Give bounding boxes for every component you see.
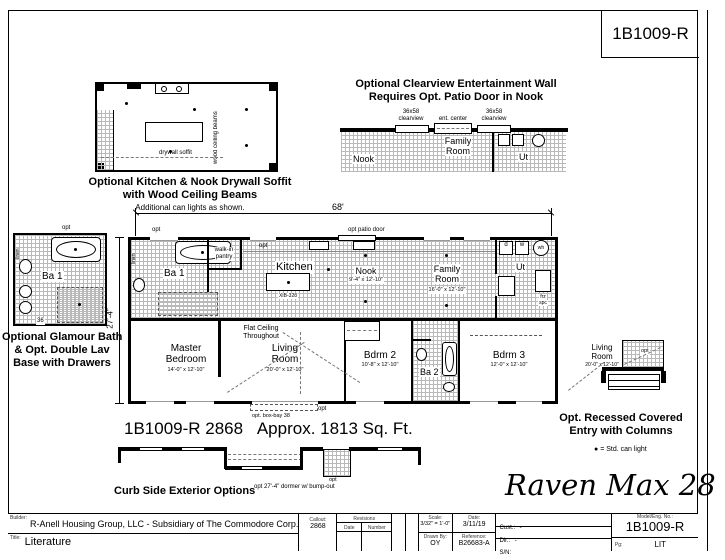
revisions-cell: Revisions Date Number (336, 514, 391, 551)
patio-door (338, 235, 376, 241)
room-label-family: Family Room (419, 264, 475, 284)
window (186, 401, 214, 405)
drywall-soffit-label: drywall soffit (159, 150, 192, 157)
window (356, 401, 384, 405)
nook-label: Nook (352, 154, 375, 164)
column (661, 371, 666, 383)
sink (443, 382, 455, 392)
soffit-dashed-line (101, 157, 223, 158)
dormer-dashed-line (228, 454, 302, 455)
room-label-ba2: Ba 2 (419, 367, 440, 377)
room-label-ba1: Ba 1 (41, 271, 64, 282)
opt-label: opt (259, 243, 267, 250)
range (353, 241, 375, 250)
window (182, 447, 204, 451)
closet (344, 321, 380, 341)
porch-deck (323, 449, 351, 477)
reference-value: B26683-A (453, 540, 496, 548)
opt-label: opt (318, 406, 326, 413)
title-line: Requires Opt. Patio Door in Nook (344, 91, 568, 104)
pg-value: LIT (622, 540, 698, 549)
dim-width-label: 68' (332, 202, 344, 212)
box-bay-outline (250, 404, 318, 411)
ceiling-ridge-line (300, 332, 301, 394)
opt-label: opt (62, 225, 70, 232)
linen-label: linen (131, 246, 137, 264)
ent-wall-title: Optional Clearview Entertainment Wall Re… (344, 78, 568, 104)
rev-date-header: Date (337, 523, 362, 531)
washer-box (512, 134, 524, 146)
caption-line: Optional Kitchen & Nook Drywall Soffit (84, 176, 296, 189)
wall-segment (492, 132, 494, 172)
window (516, 401, 542, 405)
family-room-label: Family Room (428, 136, 488, 156)
window (424, 237, 450, 241)
cust-row: Cust.: - (496, 514, 610, 527)
builder-label: Builder: (10, 515, 27, 521)
garden-tub (51, 237, 101, 262)
kitchen-soffit-detail: wood ceiling beams drywall soffit (95, 82, 278, 172)
dlr-row: Dlr.: - (496, 527, 610, 539)
revisions-subheader: Date Number (337, 523, 391, 532)
model-pg-cell: Model/Eng. No.: 1B1009-R Pg: LIT (611, 514, 698, 551)
ut-label: Ut (518, 152, 529, 162)
wall-post (269, 163, 276, 170)
dim-depth-label: 27'-4" (106, 308, 115, 328)
glamour-bath-detail: Ba 1 linen (13, 233, 107, 326)
wall-segment (495, 296, 497, 318)
room-label-nook: Nook (346, 266, 386, 276)
room-label-master: Master Bedroom 14'-0" x 12'-10" (151, 343, 221, 374)
cooktop (155, 83, 189, 94)
closet-rod (347, 330, 377, 331)
island-model-label: XIB-328 (266, 293, 310, 299)
clearview-window (395, 125, 429, 133)
can-light-dot (445, 254, 448, 257)
window (242, 466, 262, 470)
toilet (133, 278, 145, 292)
series-name-logo: Raven Max 28 (505, 468, 705, 502)
rev-number-header: Number (362, 523, 391, 531)
tub (442, 342, 457, 376)
clearview-window (477, 125, 511, 133)
can-light-dot (445, 304, 448, 307)
wall-segment (495, 240, 497, 274)
lav-cabinet (498, 276, 515, 296)
lav-sink (19, 285, 32, 298)
entry-detail-caption: Opt. Recessed Covered Entry with Columns (556, 412, 686, 438)
window (140, 447, 162, 451)
can-light-dot (74, 248, 77, 251)
wall-segment (240, 240, 242, 270)
freezer-space-label: frz spc (535, 294, 551, 306)
title-line: Optional Clearview Entertainment Wall (344, 78, 568, 91)
dormer-label: opt 27'-4" dormer w/ bump-out (254, 484, 335, 491)
linen-label: linen (15, 239, 21, 259)
wall-post (269, 84, 276, 91)
date-value: 3/11/19 (453, 521, 496, 529)
can-light-dot (364, 300, 367, 303)
wood-beams-label: wood ceiling beams (213, 90, 220, 164)
room-label-ut: Ut (515, 262, 526, 272)
nook-dims: 9'-4" x 12'-10" (336, 277, 396, 284)
model-value: 1B1009-R (612, 520, 698, 534)
plan-caption-model: 1B1009-R 2868 (124, 419, 243, 438)
opt-patio-door-label: opt patio door (348, 227, 385, 234)
builder-row: Builder: R-Anell Housing Group, LLC - Su… (8, 514, 298, 533)
drawn-by-value: OY (419, 540, 452, 548)
model-number-box: 1B1009-R (601, 11, 699, 58)
ent-wall-detail: 36x58 clearview ent. center 36x58 clearv… (340, 108, 568, 174)
customer-cell: Cust.: - Dlr.: - S/N: (495, 514, 610, 551)
callout-value: 2868 (299, 523, 336, 531)
opt-label: opt (329, 477, 337, 484)
dim-extension (115, 403, 124, 404)
caption-line: with Wood Ceiling Beams (84, 189, 296, 202)
sink (309, 241, 329, 250)
pg-cell: Pg: LIT (612, 538, 698, 551)
can-light-dot (364, 254, 367, 257)
can-light-dot (78, 303, 81, 306)
title-row: Title: Literature (8, 533, 298, 550)
can-light-dot (245, 144, 248, 147)
lav-sink (19, 301, 32, 314)
scale-cell: Scale: 3/32" = 1'-0" (419, 514, 452, 533)
burner (176, 86, 182, 92)
main-floor-plan: linen Ba 1 walk-in pantry opt Kitchen XI… (128, 237, 558, 404)
callout-cell: Callout: 2868 (298, 514, 336, 551)
rev-empty-cell (362, 532, 391, 551)
cabinet-run (97, 110, 114, 170)
shower (158, 292, 218, 316)
window (250, 237, 276, 241)
freezer-space (535, 270, 551, 292)
bath-detail-caption: Optional Glamour Bath & Opt. Double Lav … (2, 331, 122, 370)
entry-steps (608, 374, 660, 390)
date-cell: Date: 3/11/19 (453, 514, 496, 533)
water-heater (532, 134, 545, 147)
title-value: Literature (25, 536, 71, 549)
water-heater: wh (533, 240, 549, 256)
closet (470, 321, 542, 336)
dim-36-label: 36 (36, 318, 45, 325)
rev-empty-cell (337, 532, 362, 551)
kitchen-detail-caption: Optional Kitchen & Nook Drywall Soffit w… (84, 176, 296, 212)
window (470, 401, 498, 405)
wall-segment (127, 84, 141, 89)
family-dims: 16'-0" x 12'-10" (416, 287, 478, 294)
can-light-dot (287, 281, 290, 284)
drawn-by-cell: Drawn By: OY (419, 533, 452, 551)
window (378, 447, 402, 451)
washer-box: w (515, 241, 529, 255)
dryer-box: d (499, 241, 513, 255)
window (146, 401, 174, 405)
pantry-label: walk-in pantry (208, 247, 240, 261)
dormer-dashed-line (228, 459, 302, 460)
wall-segment (118, 447, 121, 463)
model-cell: Model/Eng. No.: 1B1009-R (612, 514, 698, 538)
title-label: Title: (10, 535, 21, 541)
title-block: Builder: R-Anell Housing Group, LLC - Su… (8, 513, 698, 551)
room-label-bdrm2: Bdrm 2 10'-8" x 12'-10" (347, 350, 413, 369)
dryer-box (498, 134, 510, 146)
wall-segment (602, 367, 664, 371)
sn-row: S/N: (496, 539, 610, 559)
scale-drawnby-cell: Scale: 3/32" = 1'-0" Drawn By: OY (418, 514, 452, 551)
can-light-legend: ● = Std. can light (594, 446, 647, 454)
wall-segment (118, 447, 226, 451)
toilet (416, 348, 427, 361)
window (464, 237, 490, 241)
revisions-empty-row (337, 532, 391, 551)
wall-segment (418, 447, 421, 465)
room-label-bdrm3: Bdrm 3 12'-0" x 12'-10" (474, 350, 544, 369)
clearview-window-label: 36x58 clearview (473, 109, 515, 123)
revisions-extra-cols (391, 514, 418, 551)
dashed-line (437, 128, 469, 129)
flat-ceiling-note: Flat Ceiling Throughout (238, 325, 284, 341)
rev-empty-col (406, 514, 418, 551)
column (601, 371, 606, 383)
scale-value: 3/32" = 1'-0" (419, 521, 452, 528)
caption-note: Additional can lights as shown. (84, 203, 296, 212)
wall-segment (413, 339, 431, 341)
can-light-dot (125, 102, 128, 105)
window (150, 237, 178, 241)
wall-segment (207, 268, 242, 270)
opt-label: opt (152, 227, 160, 234)
dim-line-width (135, 213, 552, 214)
builder-value: R-Anell Housing Group, LLC - Subsidiary … (30, 519, 298, 529)
toilet (19, 259, 32, 274)
can-light-dot (201, 251, 204, 254)
plan-caption: 1B1009-R 2868 Approx. 1813 Sq. Ft. (124, 419, 413, 439)
drawing-sheet: 1B1009-R wood ceiling beams drywall soff… (0, 0, 725, 560)
tub-basin (445, 346, 454, 372)
kitchen-island (266, 273, 310, 291)
builder-title-cell: Builder: R-Anell Housing Group, LLC - Su… (8, 514, 298, 551)
date-reference-cell: Date: 3/11/19 Reference: B26683-A (452, 514, 496, 551)
rev-empty-col (392, 514, 406, 551)
step (609, 381, 659, 387)
revisions-header: Revisions (337, 514, 391, 523)
reference-cell: Reference: B26683-A (453, 533, 496, 551)
dim-extension (115, 237, 124, 238)
ent-center-cabinet (434, 123, 472, 134)
ent-center-label: ent. center (434, 116, 472, 123)
model-number: 1B1009-R (612, 24, 689, 44)
burner (161, 86, 167, 92)
wall-segment (458, 321, 460, 401)
curb-detail-caption: Curb Side Exterior Options (114, 485, 255, 498)
clearview-window-label: 36x58 clearview (390, 109, 432, 123)
wall-segment (303, 447, 323, 451)
dim-line-depth (119, 237, 120, 404)
can-light-dot (245, 108, 248, 111)
can-light-dot (193, 108, 196, 111)
plan-caption-sqft: Approx. 1813 Sq. Ft. (257, 419, 413, 438)
legend-bullet-icon: ● (594, 446, 598, 453)
can-light-dot (169, 150, 172, 153)
wall-segment (225, 466, 303, 470)
wall-post (97, 84, 104, 91)
shower (57, 287, 103, 323)
kitchen-island (145, 122, 203, 142)
room-label-ba1: Ba 1 (163, 268, 186, 279)
can-light-dot (327, 268, 330, 271)
